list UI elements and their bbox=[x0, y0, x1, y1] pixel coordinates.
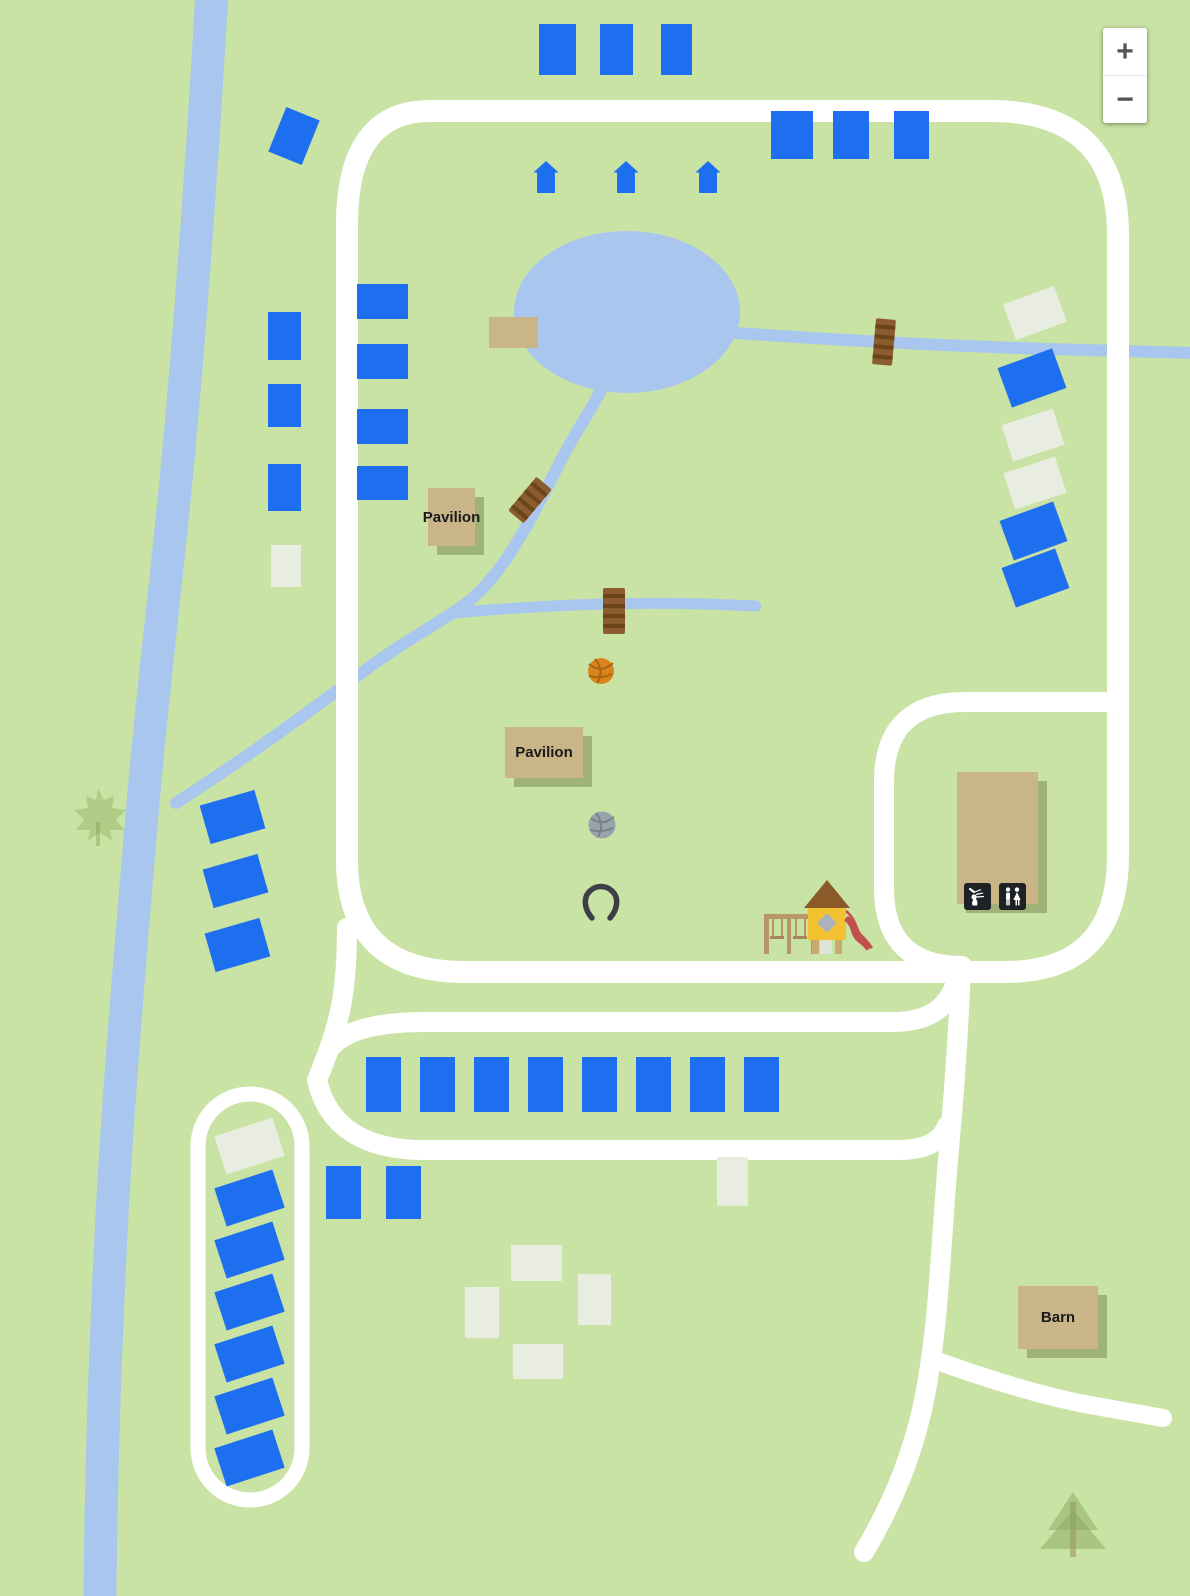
campsite[interactable] bbox=[744, 1057, 779, 1112]
campsite[interactable] bbox=[366, 1057, 401, 1112]
campsite[interactable] bbox=[420, 1057, 455, 1112]
pavilion-lower-label: Pavilion bbox=[515, 744, 573, 761]
campsite-pale[interactable] bbox=[513, 1344, 563, 1379]
campsite[interactable] bbox=[539, 24, 576, 75]
campsite[interactable] bbox=[268, 464, 301, 511]
barn-building[interactable]: Barn bbox=[1018, 1286, 1098, 1349]
campsite-pale[interactable] bbox=[271, 545, 301, 587]
campsite[interactable] bbox=[357, 344, 408, 379]
volleyball-icon bbox=[589, 812, 616, 839]
campsite[interactable] bbox=[386, 1166, 421, 1219]
maple-tree-icon bbox=[74, 788, 126, 846]
campsite[interactable] bbox=[661, 24, 692, 75]
pine-tree-icon bbox=[1040, 1492, 1106, 1557]
campsite[interactable] bbox=[600, 24, 633, 75]
pavilion-upper-label: Pavilion bbox=[423, 509, 481, 526]
horseshoe-pit-icon bbox=[585, 887, 616, 919]
zoom-out-button[interactable]: − bbox=[1103, 75, 1147, 123]
campsite[interactable] bbox=[474, 1057, 509, 1112]
campsite[interactable] bbox=[357, 409, 408, 444]
pond bbox=[514, 231, 740, 393]
campsite[interactable] bbox=[528, 1057, 563, 1112]
campsite-pale[interactable] bbox=[511, 1245, 562, 1281]
campsite[interactable] bbox=[833, 111, 869, 159]
campsite[interactable] bbox=[357, 466, 408, 500]
campsite[interactable] bbox=[894, 111, 929, 159]
campground-map[interactable]: Pavilion Pavilion Barn + bbox=[0, 0, 1190, 1596]
campsite-pale[interactable] bbox=[717, 1157, 748, 1206]
bridge-icon bbox=[603, 588, 625, 634]
campsite[interactable] bbox=[771, 111, 813, 159]
campsite[interactable] bbox=[268, 384, 301, 427]
campsite[interactable] bbox=[636, 1057, 671, 1112]
campsite[interactable] bbox=[690, 1057, 725, 1112]
playground-icon bbox=[764, 880, 872, 954]
pavilion-upper-building[interactable]: Pavilion bbox=[428, 488, 475, 546]
pavilion-lower-building[interactable]: Pavilion bbox=[505, 727, 583, 778]
basketball-icon bbox=[588, 658, 614, 684]
campsite[interactable] bbox=[326, 1166, 361, 1219]
restroom-icon bbox=[999, 883, 1026, 910]
campsite[interactable] bbox=[268, 312, 301, 360]
shower-icon bbox=[964, 883, 991, 910]
dock bbox=[489, 317, 538, 348]
zoom-in-button[interactable]: + bbox=[1103, 28, 1147, 75]
barn-label: Barn bbox=[1041, 1309, 1075, 1326]
campsite[interactable] bbox=[582, 1057, 617, 1112]
bridge-icon bbox=[872, 318, 896, 366]
zoom-control: + − bbox=[1103, 28, 1147, 123]
campsite[interactable] bbox=[357, 284, 408, 319]
campsite-pale[interactable] bbox=[465, 1287, 499, 1338]
campsite-pale[interactable] bbox=[578, 1274, 611, 1325]
